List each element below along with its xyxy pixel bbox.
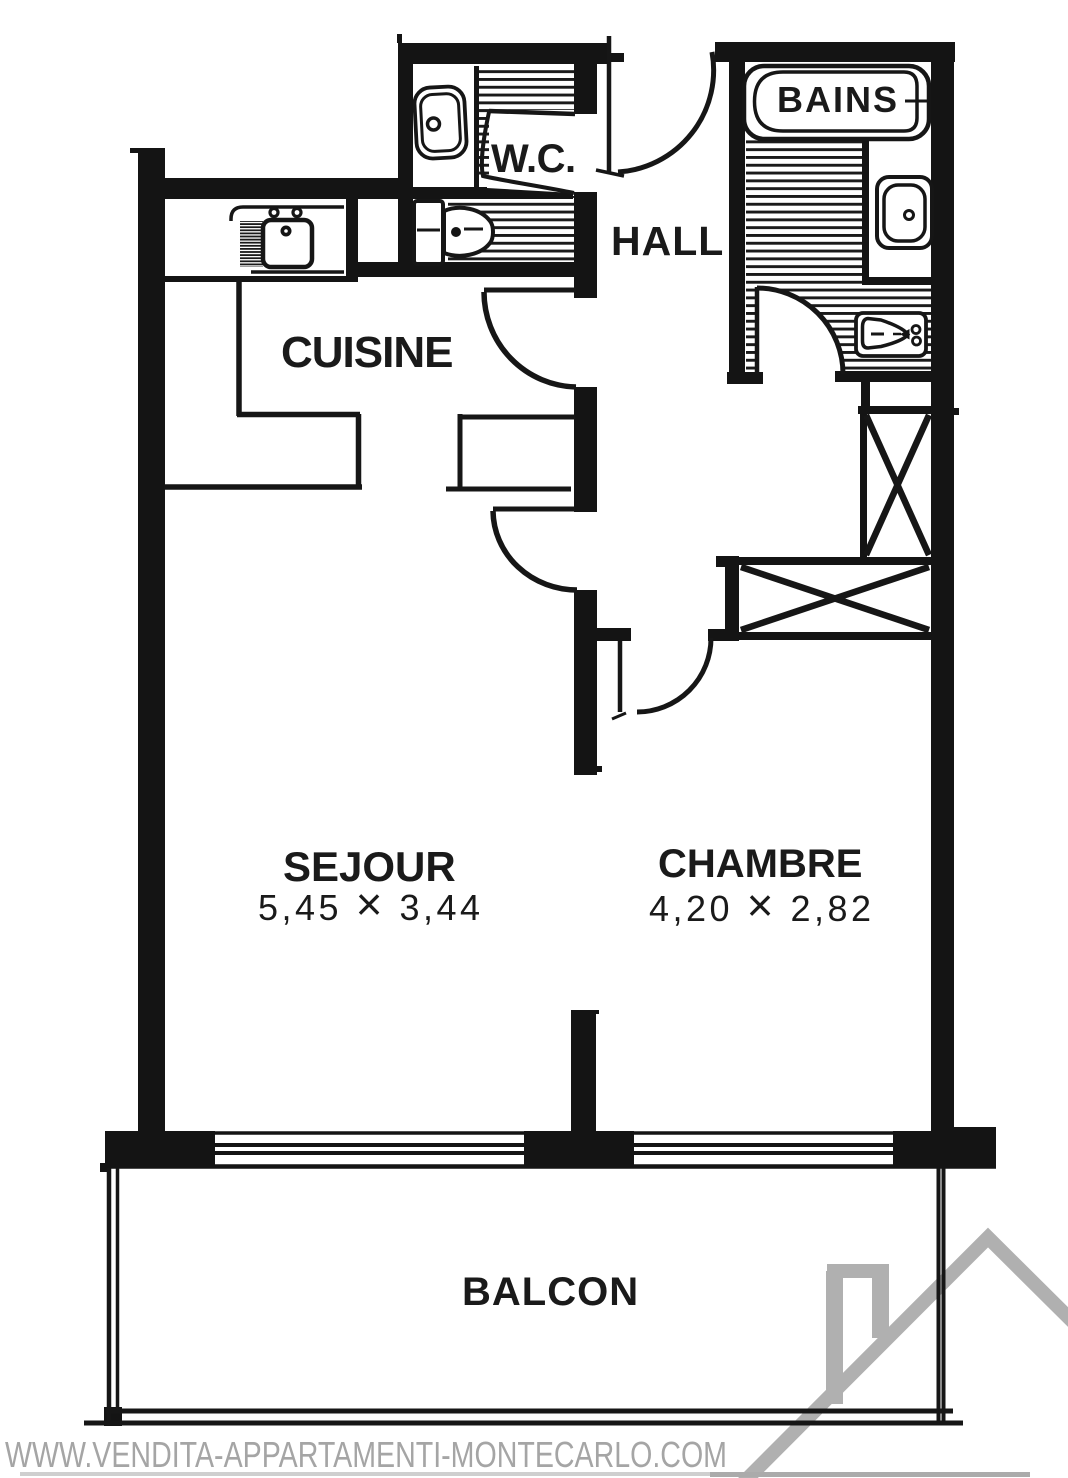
svg-text:BALCON: BALCON [462,1270,639,1314]
svg-text:WWW.VENDITA-APPARTAMENTI-MONTE: WWW.VENDITA-APPARTAMENTI-MONTECARLO.COM [5,1434,727,1475]
svg-text:HALL: HALL [611,218,724,264]
svg-text:CUISINE: CUISINE [281,328,452,377]
svg-text:W.C.: W.C. [491,137,576,181]
svg-text:BAINS: BAINS [777,79,899,120]
